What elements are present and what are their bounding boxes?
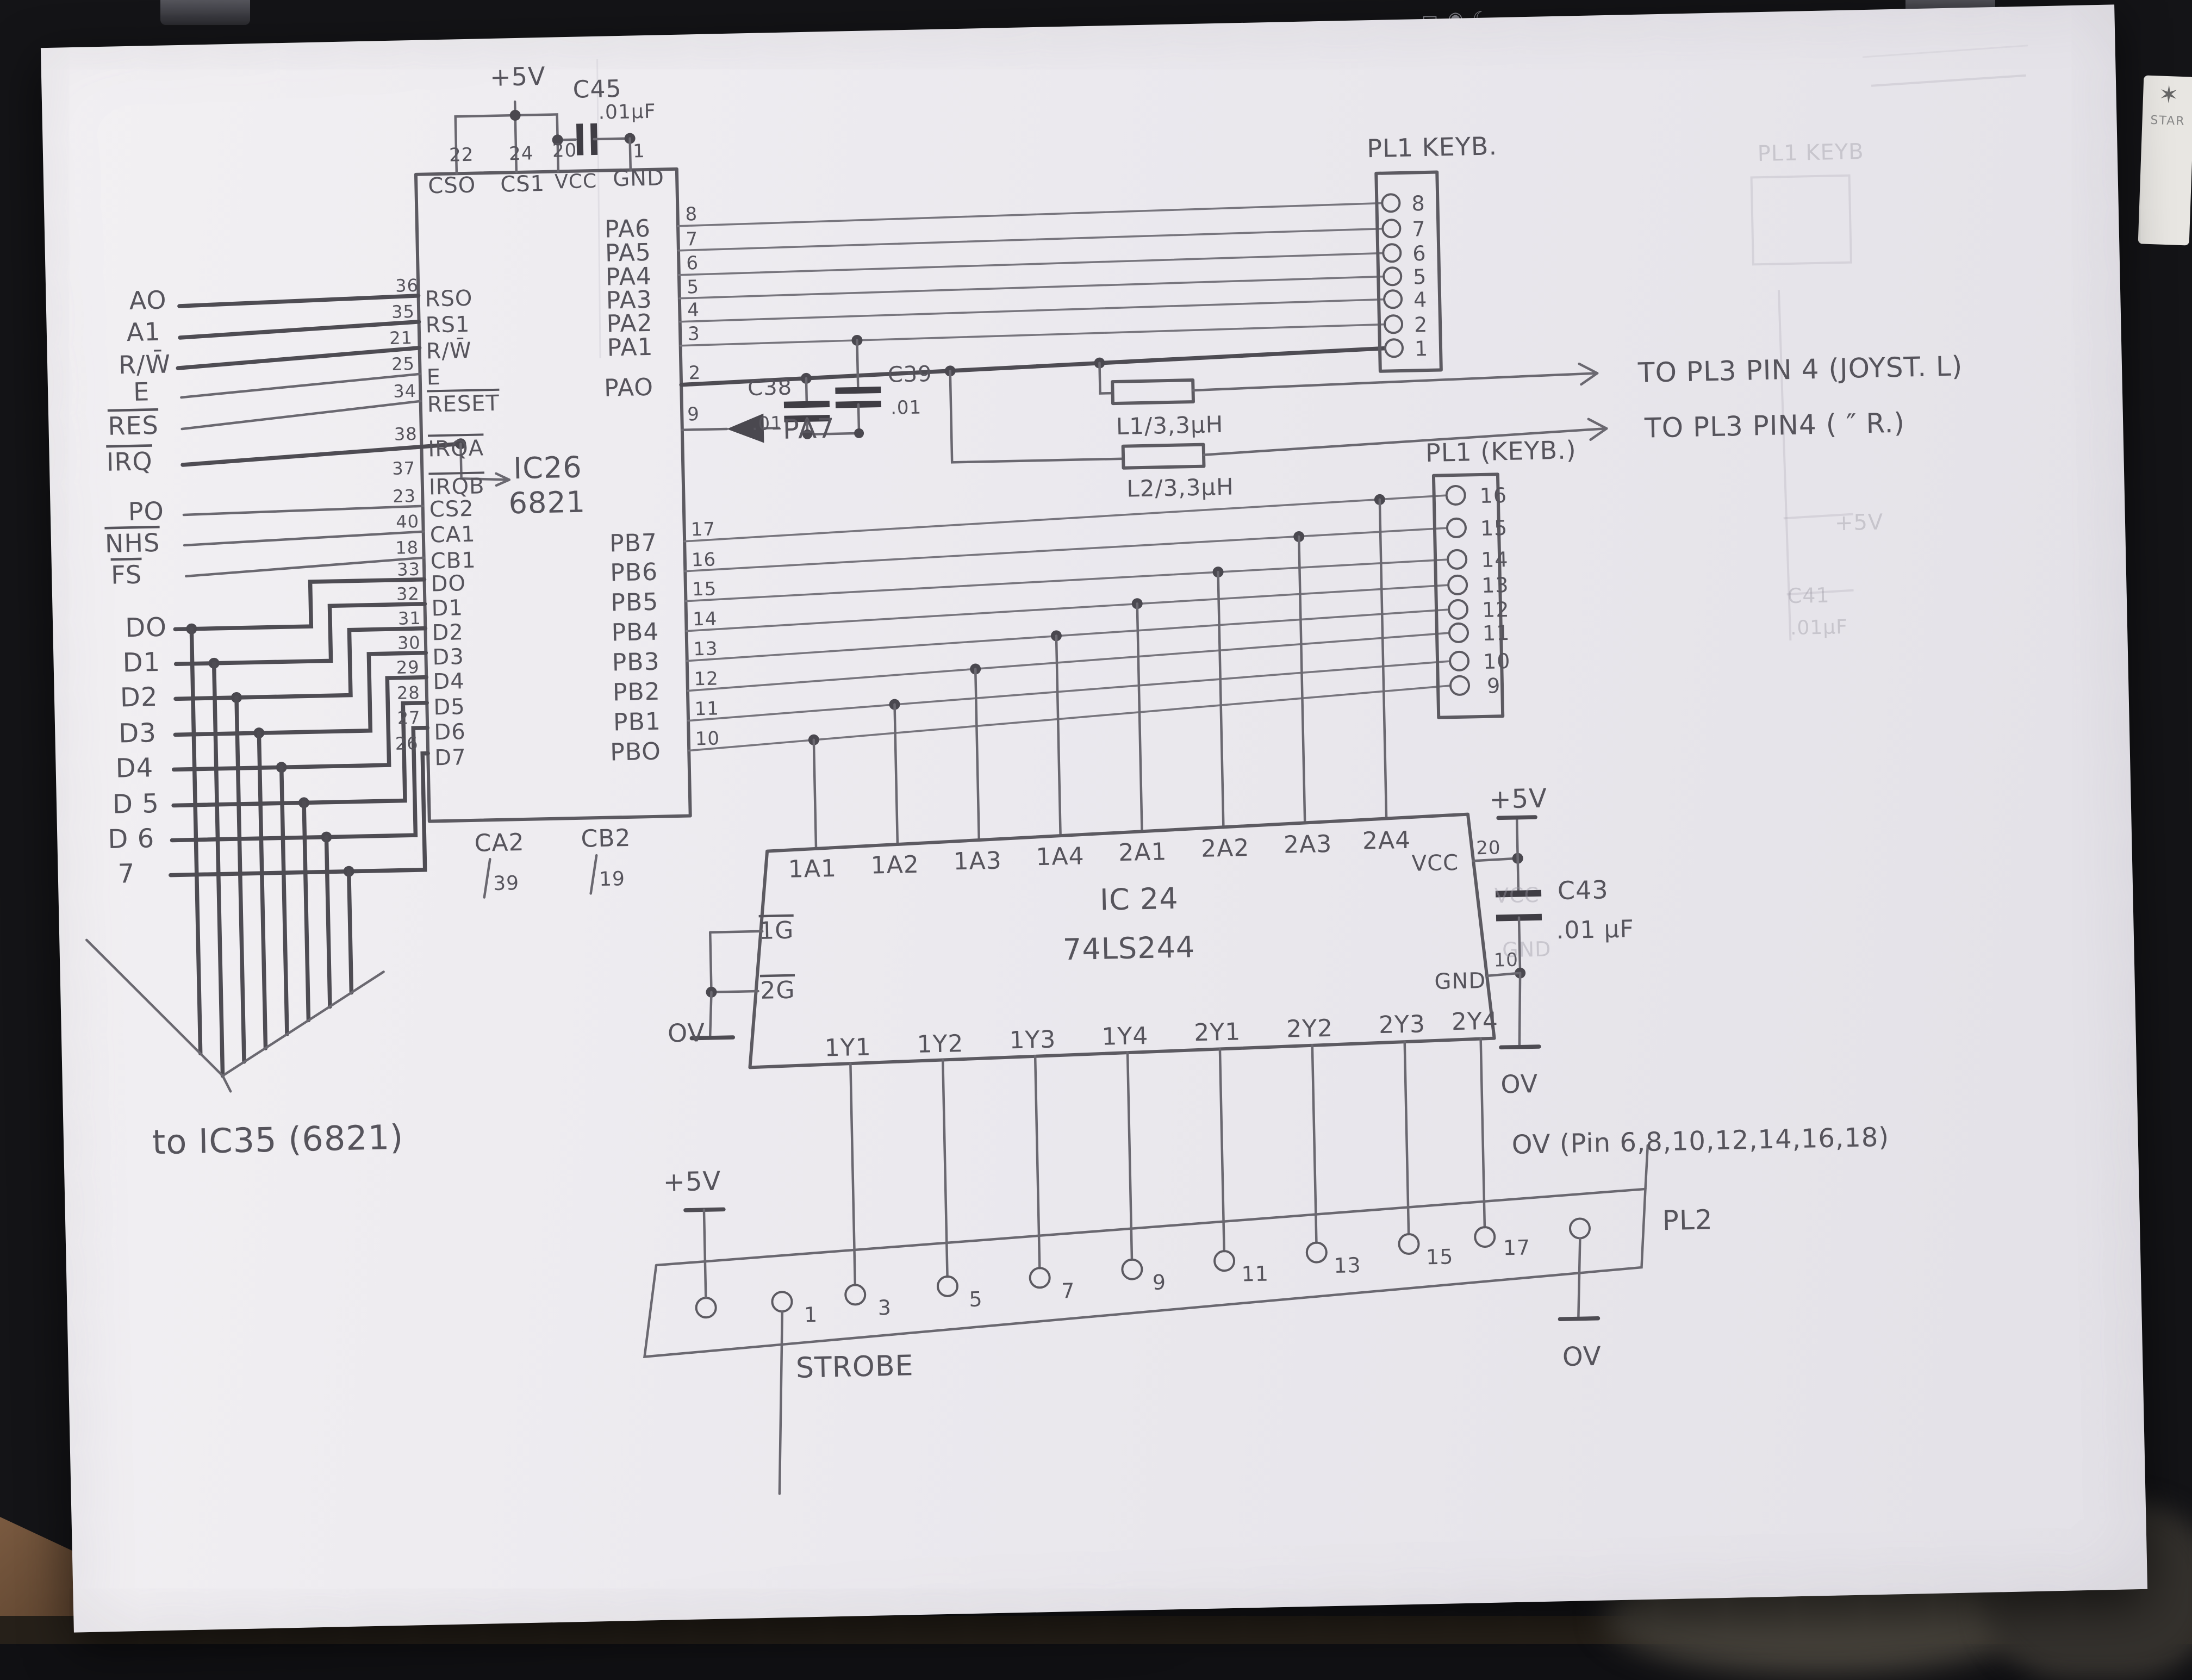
ov-gates: OV [668,1018,706,1048]
in-e: E [426,365,441,390]
out-pb7: PB7 [609,529,658,558]
sig-res: RES [108,410,159,441]
pn-27: 27 [397,707,421,729]
pl1b-title: PL1 (KEYB.) [1425,435,1577,468]
to-pl3-right: TO PL3 PIN4 ( ″ R.) [1644,407,1905,444]
out-pb6: PB6 [610,558,658,587]
pn-19: 19 [599,868,626,891]
pl1b-pin-13: 13 [1481,573,1509,598]
pn-30: 30 [397,632,421,654]
plus5v-ic26-label: +5V [490,61,546,92]
ic24-in-1a4: 1A4 [1036,842,1085,871]
pn-23: 23 [393,486,416,507]
sig-d3: D3 [119,718,157,749]
pn-26: 26 [395,733,419,754]
ic24-gnd: GND [1434,968,1486,994]
pa-port-wires [678,203,1386,445]
ic24-name: IC 24 [1099,881,1179,917]
ic24-vcc: VCC [1411,850,1459,876]
ic26-name: IC26 [513,450,583,486]
ic26-vcc: VCC [555,170,597,194]
pl2-pin-9: 9 [1152,1270,1166,1295]
sig-d7: 7 [117,858,135,889]
c45-value: .01μF [598,101,656,124]
pl1b-pin-11: 11 [1483,621,1510,645]
laptop-side-sticker: ✶ STAR [2138,75,2192,245]
c39-value: .01 [890,396,922,419]
ghost-c41v: .01μF [1790,616,1848,639]
pb-port-wires [684,493,1452,851]
ic26-part: 6821 [508,484,586,520]
ic24-output-wires [850,1038,1486,1285]
pn-13: 13 [693,638,718,660]
out-pb3: PB3 [612,648,660,677]
laptop-hinge-left [160,0,250,25]
in-reset: RESET [427,391,500,418]
sticker-text: STAR [2142,113,2192,128]
in-d6: D6 [434,719,466,745]
in-ca1: CA1 [429,522,476,548]
pin-1: 1 [633,140,645,162]
ic24-out-2y4: 2Y4 [1451,1007,1498,1036]
pin-22: 22 [449,144,474,166]
in-d1: D1 [431,595,463,621]
to-pl3-left: TO PL3 PIN 4 (JOYST. L) [1637,350,1963,389]
pn-6: 6 [686,252,699,274]
pn-17: 17 [690,518,715,540]
pl1a-pin-1: 1 [1415,337,1429,361]
laptop-desk-scene: ▭◉☾ ✶ STAR [0,0,2192,1644]
ic24-in-1a2: 1A2 [870,851,919,880]
pl1b-pin-9: 9 [1487,674,1501,698]
pn-2: 2 [688,362,701,384]
ic26-gnd: GND [613,165,665,191]
out-pb2: PB2 [612,678,661,707]
ghost-pl1: PL1 KEYB [1757,139,1864,166]
pl1b-pin-12: 12 [1482,598,1510,622]
pa7-net: PA7 [782,413,835,445]
star-icon: ✶ [2143,75,2192,115]
pn-18: 18 [395,537,419,558]
pn-11: 11 [694,698,719,720]
pn-28: 28 [396,682,420,704]
in-rs0: RSO [425,286,473,312]
ic24-in-2a1: 2A1 [1118,838,1167,867]
sig-irq: IRQ [106,446,153,477]
pn-25: 25 [391,353,415,375]
ca2-label: CA2 [474,829,525,857]
sig-p0: PO [128,496,164,526]
pin-24: 24 [509,142,534,165]
in-d5: D5 [433,694,465,720]
pl2-pin-11: 11 [1241,1261,1269,1286]
c39-ref: C39 [887,362,932,388]
pl1a-pin-6: 6 [1412,241,1427,266]
in-rw: R/W̄ [426,337,472,364]
ic26-cso: CSO [428,173,476,199]
ghost-c41: C41 [1787,583,1830,608]
in-cs2: CS2 [429,496,474,522]
cb2-label: CB2 [581,824,631,853]
pn-7: 7 [686,228,698,250]
sig-fs: FS [111,560,142,590]
ic26-cs1: CS1 [500,171,545,197]
plus5v-ic24-label: +5V [1489,783,1548,815]
sig-d1: D1 [122,647,161,678]
out-pb0: PBO [610,738,662,767]
pl1b-pin-14: 14 [1481,547,1509,572]
pn-33: 33 [397,559,421,580]
pn-12: 12 [694,668,719,690]
pl2-pin-5: 5 [969,1287,983,1311]
plus5v-pl2-label: +5V [663,1166,721,1198]
pl1-keyb-connector-a [1376,172,1441,371]
c38-value: .01 [751,413,783,435]
ic24-in-2a2: 2A2 [1201,834,1250,863]
ic24-2g: 2G [760,976,795,1005]
ghost-vcc: VCC [1494,883,1540,908]
pn-36: 36 [395,275,419,296]
strobe-label: STROBE [795,1349,914,1385]
pl2-pin-13: 13 [1334,1253,1361,1278]
to-ic35-note: to IC35 (6821) [152,1117,404,1162]
pl1a-pin-8: 8 [1411,191,1425,216]
pn-3: 3 [688,323,700,345]
c45-ref: C45 [572,75,622,104]
ic24-out-1y1: 1Y1 [824,1034,871,1062]
pl2-title: PL2 [1662,1204,1713,1236]
ic24-out-1y4: 1Y4 [1101,1022,1149,1051]
in-d7: D7 [434,745,466,770]
out-pb1: PB1 [613,708,662,737]
ghost-gnd: GND [1502,937,1552,962]
sig-a0: AO [129,285,167,315]
ov-pl2: OV [1562,1341,1602,1372]
pl2-connector [640,1146,1654,1497]
pl2-pin-17: 17 [1503,1235,1530,1260]
pn-38: 38 [394,424,418,445]
in-irqa: IRQA [428,435,484,462]
in-d2: D2 [432,620,464,645]
pl1a-pin-4: 4 [1413,288,1428,312]
pl1a-pin-7: 7 [1412,217,1426,241]
sig-d4: D4 [115,752,154,783]
sig-d2: D2 [120,682,158,713]
pn-29: 29 [396,657,420,678]
pl2-pin-7: 7 [1061,1279,1075,1303]
pn-14: 14 [693,608,718,630]
pl2-pin-3: 3 [877,1296,892,1320]
ic24-out-2y1: 2Y1 [1194,1018,1241,1047]
schematic-drawing: +5VC45.01μF2224201CSOCS1VCCGNDIC266821AO… [41,4,2147,1632]
pn-8: 8 [685,203,698,225]
sig-nhs: NHS [104,528,160,558]
ic24-out-1y3: 1Y3 [1009,1026,1056,1055]
pn-10: 10 [695,727,720,750]
pin-20: 20 [552,140,577,162]
out-pb5: PB5 [611,588,659,617]
ov-ic24: OV [1500,1069,1539,1099]
ghost-5v: +5V [1834,509,1883,536]
c38-ref: C38 [748,375,793,401]
ic24-in-2a4: 2A4 [1362,826,1411,855]
pn-9: 9 [687,403,700,425]
pl1b-pin-16: 16 [1479,483,1507,508]
pl1a-pin-2: 2 [1414,313,1428,337]
out-pa0: PAO [604,374,654,402]
pl2-pin-15: 15 [1426,1245,1454,1269]
in-d3: D3 [432,644,464,670]
pn-32: 32 [396,583,420,605]
pl1b-pin-15: 15 [1480,516,1508,540]
in-cb1: CB1 [430,548,476,574]
in-d4: D4 [433,669,465,694]
sig-a1: A1 [126,317,161,347]
sig-rw: R/W̄ [119,349,171,379]
l2-value: L2/3,3μH [1126,473,1234,502]
sig-e: E [133,377,150,407]
l1-value: L1/3,3μH [1116,411,1223,440]
ic24-in-1a3: 1A3 [953,847,1002,876]
sig-d6: D 6 [108,823,155,855]
pn-15: 15 [692,578,717,600]
c43-ref: C43 [1557,875,1609,905]
ic24-out-2y2: 2Y2 [1286,1015,1334,1043]
pn-34: 34 [393,381,417,402]
ic24-part: 74LS244 [1062,930,1195,967]
ic24-1g: 1G [759,917,794,945]
pn-37: 37 [392,458,416,479]
pn-31: 31 [398,608,422,629]
schematic-paper: +5VC45.01μF2224201CSOCS1VCCGNDIC266821AO… [41,4,2147,1632]
ic24-out-1y2: 1Y2 [917,1030,964,1059]
pn-16: 16 [691,549,716,571]
pl1a-title: PL1 KEYB. [1367,131,1498,163]
sig-d5: D 5 [112,788,159,820]
out-pb4: PB4 [611,618,659,647]
pl1b-pin-10: 10 [1483,649,1511,674]
pn-20b: 20 [1476,837,1501,859]
in-irqb: IRQB [428,474,484,500]
pn-5: 5 [687,276,699,298]
pl2-pin-1: 1 [804,1303,818,1327]
ic24-in-2a3: 2A3 [1284,830,1332,859]
pn-4: 4 [687,299,700,321]
paper-creases [594,29,2034,358]
pn-35: 35 [391,301,415,322]
c43-value: .01 μF [1556,915,1634,944]
ic24-in-1a1: 1A1 [788,855,837,883]
pn-21: 21 [389,327,413,349]
sig-d0: DO [125,612,167,644]
pn-39: 39 [493,872,520,895]
pn-40: 40 [396,511,420,532]
pl1a-pin-5: 5 [1413,265,1427,289]
in-rs1: RS1 [425,312,470,338]
in-d0: DO [431,571,466,596]
out-pa1: PA1 [607,333,653,362]
ov-pins-note: OV (Pin 6,8,10,12,14,16,18) [1511,1122,1889,1161]
ic24-out-2y3: 2Y3 [1379,1010,1426,1039]
